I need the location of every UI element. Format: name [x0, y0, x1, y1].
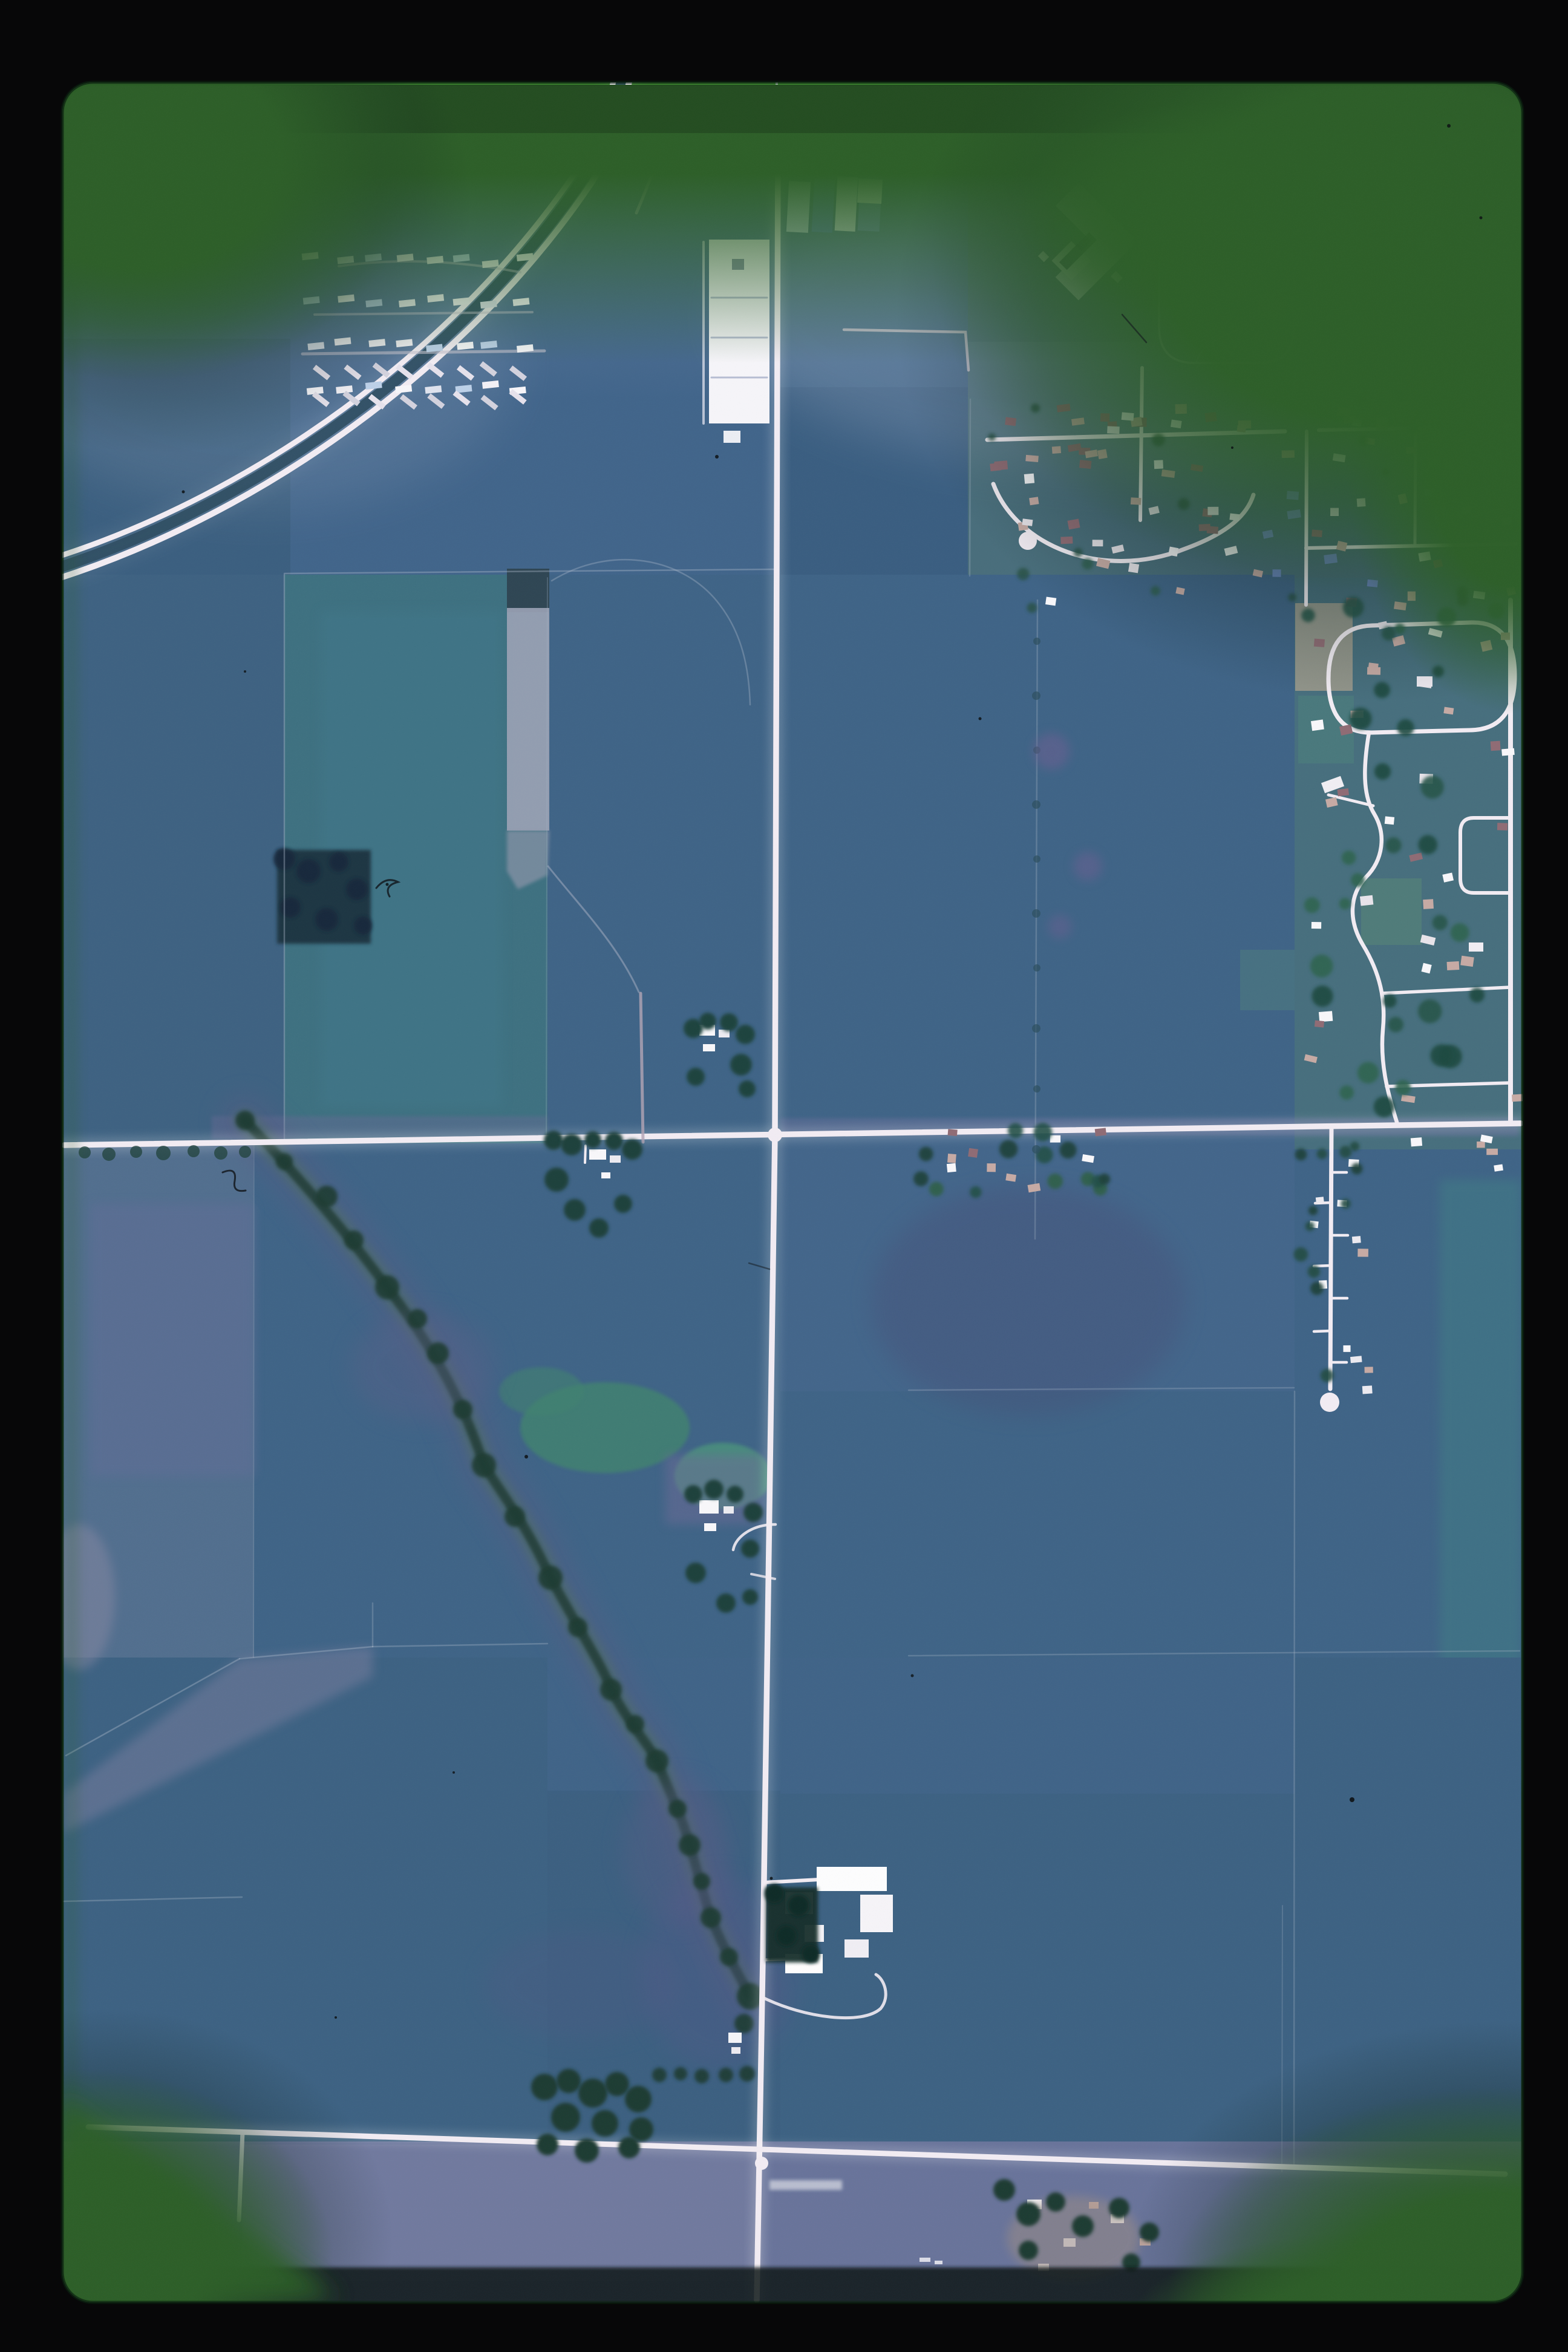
film-slide-scan [0, 0, 1568, 2352]
film-grain-overlay [64, 86, 1521, 2300]
aerial-photo-slide [0, 0, 1568, 2352]
